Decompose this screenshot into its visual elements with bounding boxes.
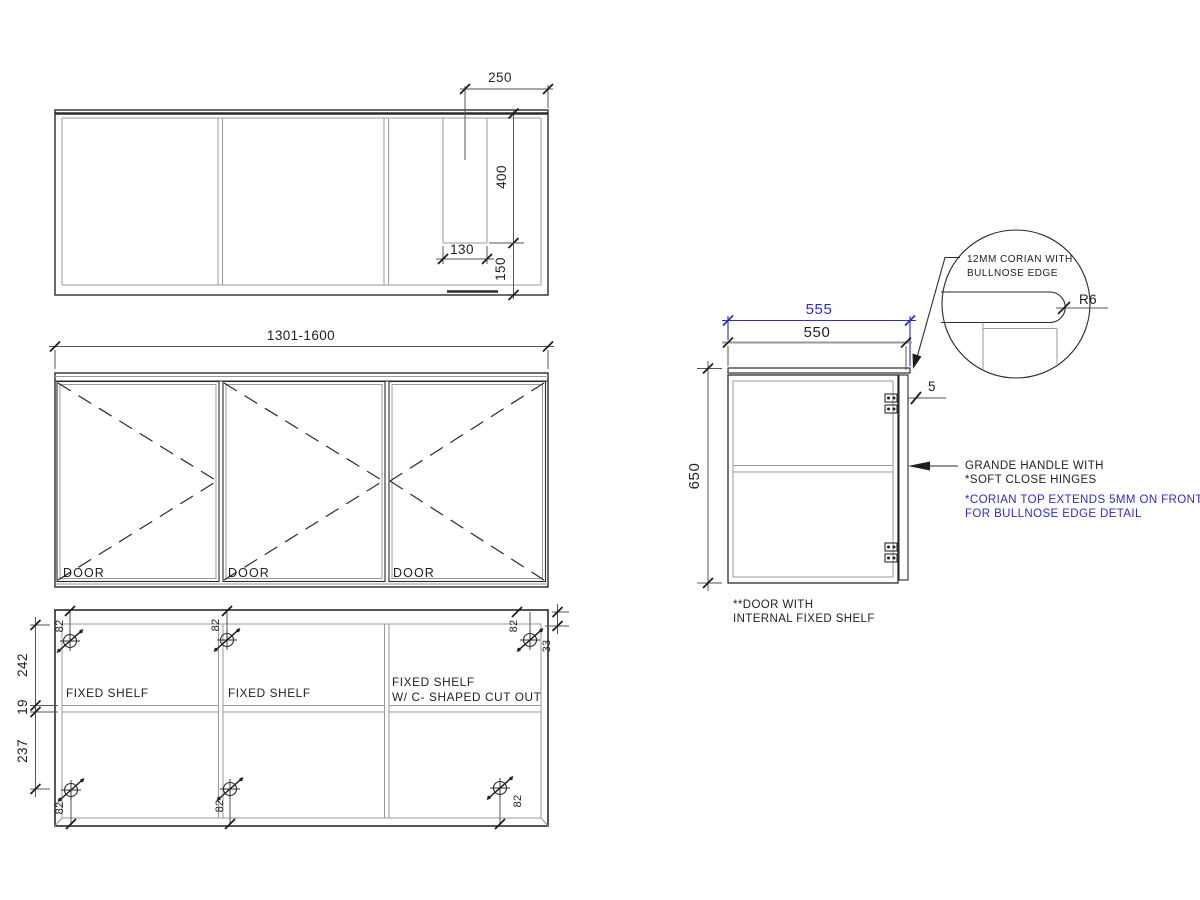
- hinge-icon: [885, 394, 897, 413]
- dim-242-label: 242: [15, 653, 30, 677]
- door-label-2: DOOR: [228, 566, 270, 580]
- fixed-shelf-cutout-label-line1: FIXED SHELF: [392, 675, 475, 689]
- note-handle-line1: GRANDE HANDLE WITH: [965, 460, 1104, 472]
- dim-130-label: 130: [450, 242, 474, 257]
- detail-geometry: [941, 292, 1065, 369]
- hinge-icon: [885, 543, 897, 562]
- door-label-1: DOOR: [63, 566, 105, 580]
- fixed-shelf-label-1: FIXED SHELF: [66, 686, 149, 700]
- hinge-symbol: 82: [210, 606, 240, 652]
- cad-drawing-page: 250 400 130 150 1301-16: [0, 0, 1200, 900]
- detail-text-line1: 12MM CORIAN WITH: [967, 254, 1073, 265]
- hinge-offset-label: 82: [54, 802, 66, 815]
- internal-view-dimensions-left: 242 19 237: [15, 617, 58, 797]
- handle-leader-arrow: [908, 462, 958, 471]
- side-view-dimension-650: 650: [686, 361, 722, 591]
- note-handle-line2: *SOFT CLOSE HINGES: [965, 474, 1097, 486]
- radius-label: R6: [1079, 292, 1097, 307]
- dim-555-label: 555: [806, 301, 833, 318]
- internal-view-geometry: [55, 610, 548, 826]
- detail-text-line2: BULLNOSE EDGE: [967, 268, 1058, 279]
- note-door-line2: INTERNAL FIXED SHELF: [733, 613, 875, 625]
- internal-view: FIXED SHELF FIXED SHELF FIXED SHELF W/ C…: [15, 604, 569, 829]
- internal-view-dimension-33: 33: [541, 604, 569, 652]
- cad-drawing-canvas: 250 400 130 150 1301-16: [0, 0, 1200, 900]
- top-view-geometry: [55, 110, 548, 295]
- front-view-dimension: 1301-1600: [49, 328, 554, 369]
- note-corian-line2: FOR BULLNOSE EDGE DETAIL: [965, 508, 1142, 520]
- dim-150-label: 150: [493, 257, 508, 281]
- detail-radius-dimension: R6: [1056, 292, 1108, 314]
- detail-leader-arrow: [913, 258, 961, 370]
- hinge-symbol: 82: [487, 777, 524, 830]
- dim-19-label: 19: [15, 699, 30, 715]
- dim-250-label: 250: [488, 70, 512, 85]
- hinge-offset-label: 82: [210, 619, 222, 632]
- side-view-dimension-550: 550: [722, 324, 912, 370]
- front-view: 1301-1600 DOOR DOOR DOOR: [49, 328, 554, 587]
- fixed-shelf-cutout-label-line2: W/ C- SHAPED CUT OUT: [392, 690, 541, 704]
- hinge-offset-label: 82: [214, 800, 226, 813]
- note-door-line1: **DOOR WITH: [733, 599, 813, 611]
- top-view: 250 400 130 150: [55, 70, 553, 300]
- hinge-offset-label: 82: [508, 620, 520, 633]
- dim-237-label: 237: [15, 739, 30, 763]
- door-label-3: DOOR: [393, 566, 435, 580]
- top-view-dimensions: 250 400 130 150: [436, 70, 553, 300]
- dim-550-label: 550: [804, 324, 831, 341]
- dim-650-label: 650: [686, 463, 703, 490]
- side-view-dimension-5: 5: [908, 379, 946, 404]
- dim-400-label: 400: [494, 165, 509, 189]
- dim-33-label: 33: [541, 640, 553, 653]
- dim-width-label: 1301-1600: [267, 328, 335, 343]
- detail-circle: 12MM CORIAN WITH BULLNOSE EDGE R6: [913, 230, 1109, 378]
- side-view-geometry: [728, 368, 910, 583]
- hinge-offset-label: 82: [512, 795, 524, 808]
- fixed-shelf-label-2: FIXED SHELF: [228, 686, 311, 700]
- note-corian-line1: *CORIAN TOP EXTENDS 5MM ON FRONT: [965, 494, 1200, 506]
- side-view: 555 550 650 5: [686, 301, 1200, 625]
- hinge-symbol: 82: [508, 607, 543, 652]
- front-view-geometry: [55, 373, 548, 587]
- dim-5-label: 5: [928, 379, 936, 394]
- hinge-offset-label: 82: [54, 620, 66, 633]
- hinge-symbol: 82: [54, 606, 83, 653]
